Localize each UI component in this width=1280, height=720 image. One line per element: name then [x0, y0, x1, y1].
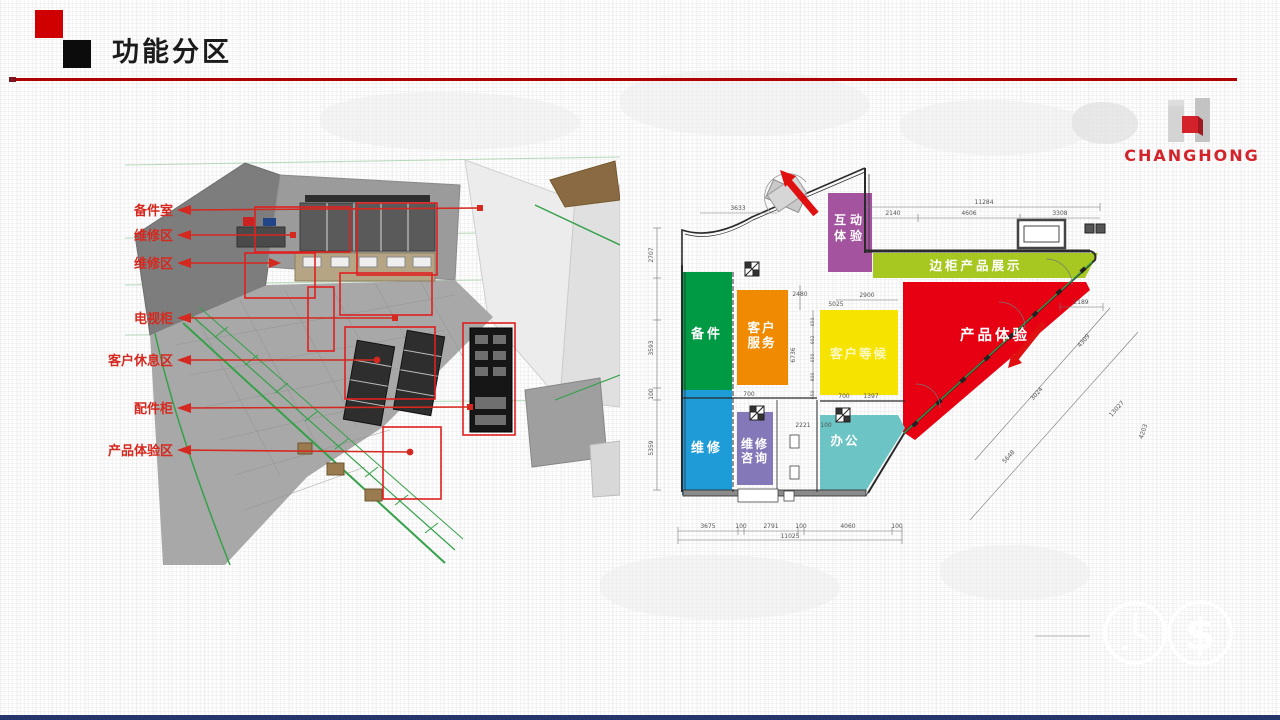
dim-label: 602: [810, 336, 816, 345]
render-label: 维修区: [134, 256, 173, 272]
dim-label: 11284: [974, 199, 993, 206]
slide: 功能分区 CHANGHONG: [0, 0, 1280, 720]
dim-label: 2140: [885, 210, 900, 217]
dim-label: 700: [743, 391, 755, 398]
zone-label: 备件: [690, 326, 723, 342]
zone-label: 办公: [830, 433, 859, 448]
zone-label: 产品体验: [960, 326, 1030, 344]
dim-label: 4060: [840, 523, 855, 530]
render-label: 维修区: [134, 228, 173, 244]
dim-label: 4203: [1138, 423, 1149, 440]
dim-label: 4606: [961, 210, 976, 217]
zone-label: 维修咨询: [741, 436, 769, 465]
dim-label: 5025: [828, 301, 843, 308]
page-title: 功能分区: [112, 30, 232, 69]
floorplan-view: 备件 维修 互动体验 边柜产品展示 客户服务 维修咨询 客户等候 产品体验 办公: [640, 160, 1155, 555]
dim-label: 11025: [780, 533, 799, 540]
title-black-square: [63, 40, 91, 68]
currency-icon: $: [1169, 602, 1231, 664]
dim-label: 5648: [1001, 449, 1017, 465]
dim-label: 6736: [790, 347, 797, 362]
dim-label: 3633: [730, 205, 745, 212]
dim-label: 100: [820, 422, 832, 429]
render-label: 备件室: [133, 203, 173, 219]
map-blob: [900, 100, 1090, 155]
dim-label: 13027: [1108, 399, 1126, 418]
render-3d-view: 备件室 维修区 维修区 电视柜 客户休息区 配件柜 产品体验区: [95, 145, 620, 565]
dim-label: 700: [838, 393, 850, 400]
dim-label: 650: [810, 354, 816, 363]
dim-label: 2189: [1073, 299, 1088, 306]
bottom-accent-bar: [0, 715, 1280, 720]
title-red-square: [35, 10, 63, 38]
dim-label: 100: [891, 523, 903, 530]
dim-label: 4309: [1076, 333, 1092, 349]
map-blob: [320, 92, 580, 150]
clock-icon: [1105, 603, 1165, 663]
dim-label: 2221: [795, 422, 810, 429]
map-blob: [600, 555, 840, 619]
dim-label: 100: [795, 523, 807, 530]
dim-label: 650: [810, 391, 816, 400]
dim-label: 3308: [1052, 210, 1067, 217]
zone-label: 维修: [691, 440, 723, 456]
footer-icons: $: [1035, 595, 1245, 675]
zone-label: 边柜产品展示: [928, 258, 1022, 273]
render-label: 电视柜: [134, 311, 173, 327]
dim-label: 2900: [859, 292, 874, 299]
dim-label: 100: [648, 388, 655, 400]
dim-label: 100: [735, 523, 747, 530]
dim-label: 3593: [648, 340, 655, 355]
map-blob: [1072, 102, 1138, 144]
dim-label: 1397: [863, 393, 878, 400]
dim-label: 3675: [700, 523, 715, 530]
zone-product-experience: [903, 282, 1090, 440]
dim-label: 2707: [648, 247, 655, 262]
dim-label: 2791: [763, 523, 778, 530]
dim-label: 5359: [648, 440, 655, 455]
dim-label: 2480: [792, 291, 807, 298]
dim-label: 3024: [1029, 386, 1045, 402]
svg-text:$: $: [1185, 609, 1216, 660]
changhong-logo-icon: [1158, 94, 1228, 146]
render-label: 配件柜: [134, 401, 173, 417]
dim-label: 800: [810, 373, 816, 382]
title-underline: [9, 78, 1237, 81]
zone-label: 客户服务: [746, 320, 776, 350]
render-label: 客户休息区: [108, 353, 173, 369]
dim-label: 650: [810, 318, 816, 327]
render-label: 产品体验区: [108, 443, 173, 459]
zone-label: 客户等候: [829, 346, 888, 361]
